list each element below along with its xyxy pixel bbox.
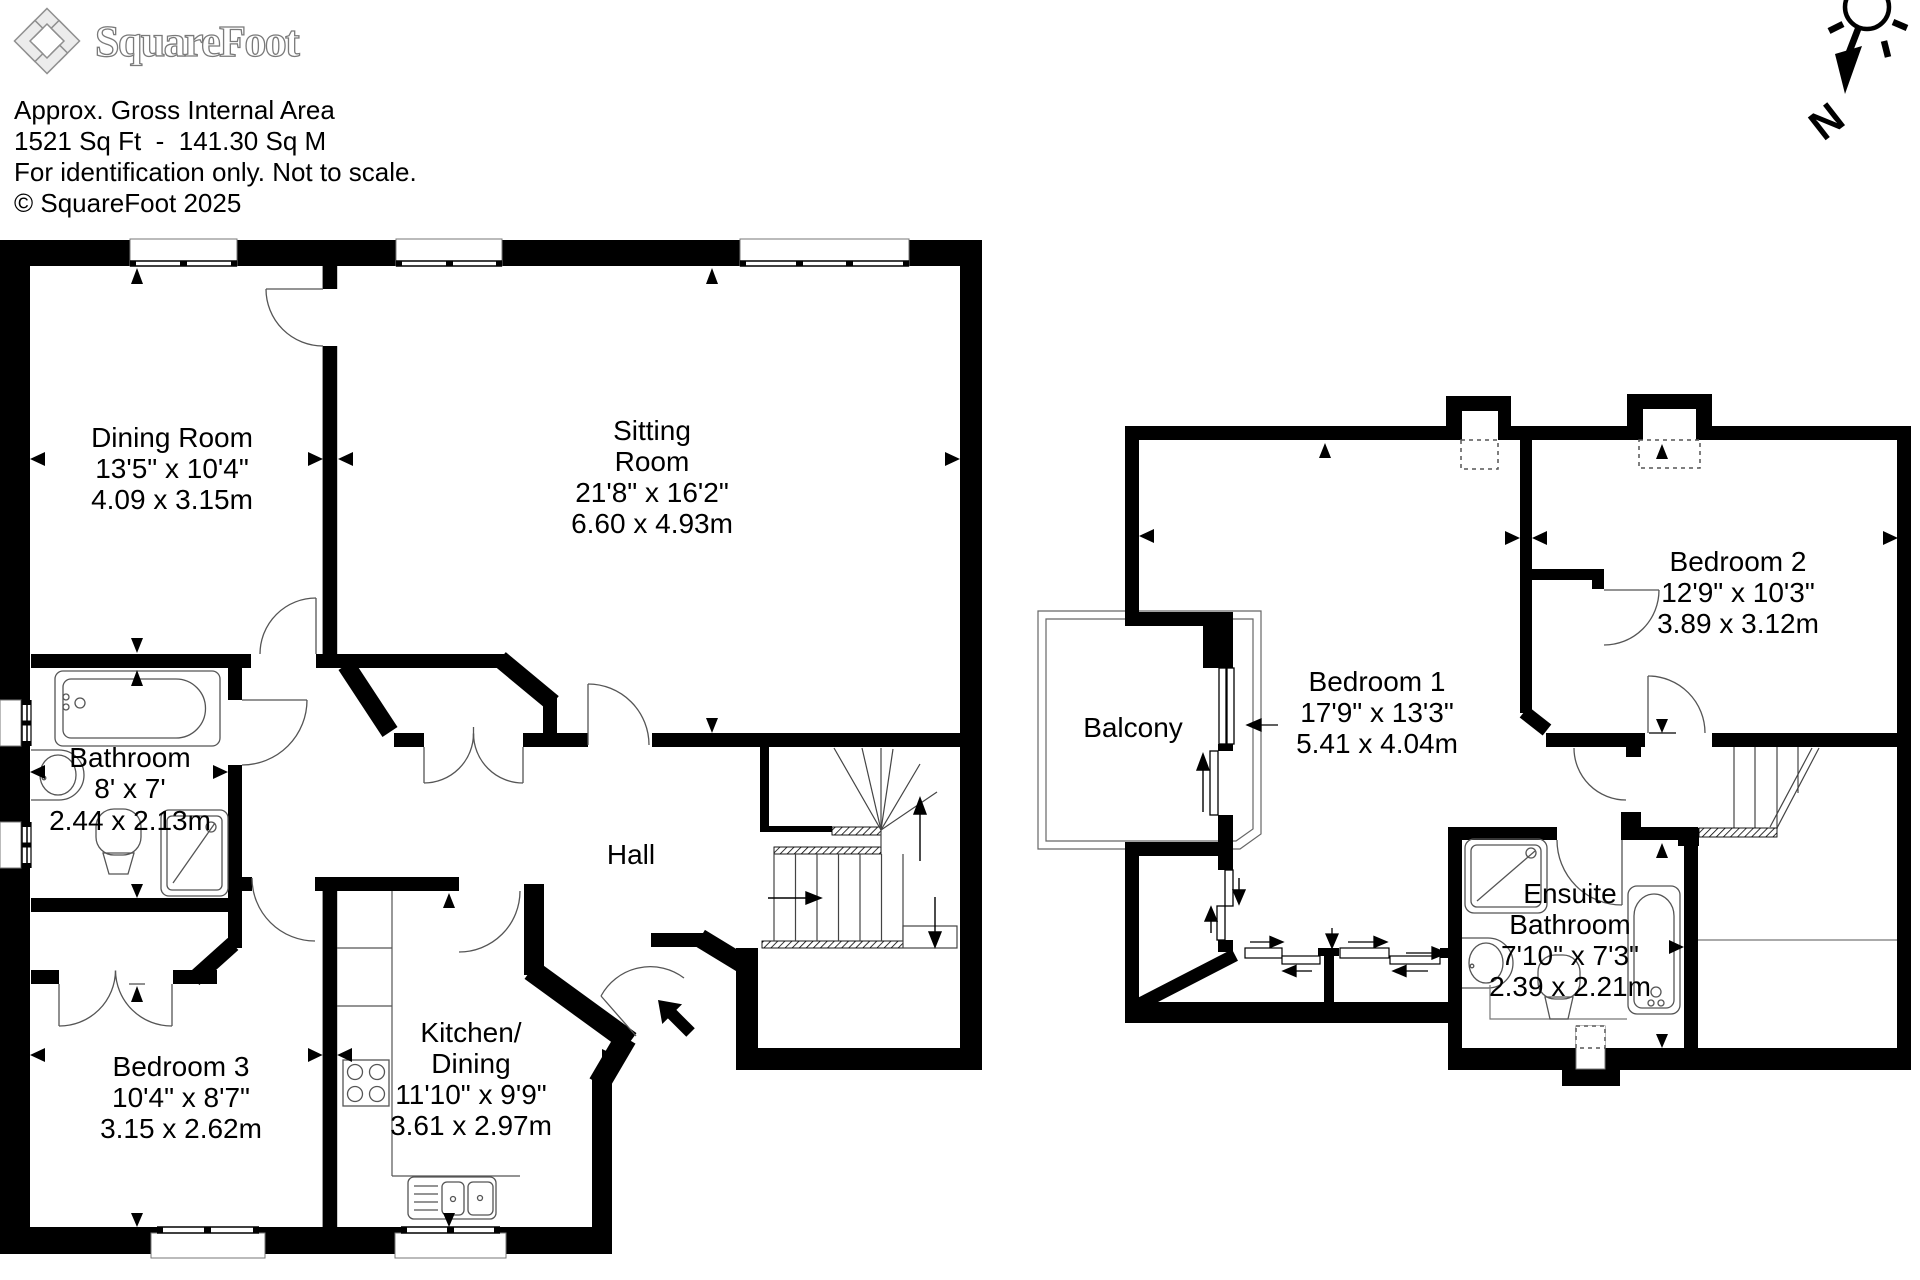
svg-text:10'4" x 8'7": 10'4" x 8'7" (112, 1082, 250, 1113)
svg-text:7'10" x 7'3": 7'10" x 7'3" (1501, 940, 1639, 971)
svg-text:SquareFoot: SquareFoot (95, 17, 300, 66)
svg-text:3.61 x 2.97m: 3.61 x 2.97m (390, 1110, 552, 1141)
svg-text:Bedroom 1: Bedroom 1 (1309, 666, 1446, 697)
svg-text:5.41 x 4.04m: 5.41 x 4.04m (1296, 728, 1458, 759)
svg-text:13'5" x 10'4": 13'5" x 10'4" (95, 453, 249, 484)
svg-text:6.60 x 4.93m: 6.60 x 4.93m (571, 508, 733, 539)
svg-text:Bathroom: Bathroom (69, 742, 190, 773)
svg-text:3.15 x 2.62m: 3.15 x 2.62m (100, 1113, 262, 1144)
svg-text:Dining Room: Dining Room (91, 422, 253, 453)
svg-text:For identification only. Not t: For identification only. Not to scale. (14, 157, 417, 187)
svg-text:Room: Room (615, 446, 690, 477)
svg-text:12'9" x 10'3": 12'9" x 10'3" (1661, 577, 1815, 608)
svg-text:Bedroom 3: Bedroom 3 (113, 1051, 250, 1082)
svg-text:1521 Sq Ft - 141.30 Sq M: 1521 Sq Ft - 141.30 Sq M (14, 126, 326, 156)
svg-text:8' x 7': 8' x 7' (94, 773, 165, 804)
svg-text:Sitting: Sitting (613, 415, 691, 446)
svg-text:Bedroom 2: Bedroom 2 (1670, 546, 1807, 577)
svg-text:Bathroom: Bathroom (1509, 909, 1630, 940)
svg-text:21'8" x 16'2": 21'8" x 16'2" (575, 477, 729, 508)
svg-text:2.44 x 2.13m: 2.44 x 2.13m (49, 805, 211, 836)
svg-text:Ensuite: Ensuite (1523, 878, 1616, 909)
svg-text:Dining: Dining (431, 1048, 510, 1079)
svg-text:Kitchen/: Kitchen/ (420, 1017, 521, 1048)
svg-text:Hall: Hall (607, 839, 655, 870)
svg-text:17'9" x 13'3": 17'9" x 13'3" (1300, 697, 1454, 728)
svg-text:© SquareFoot 2025: © SquareFoot 2025 (14, 188, 241, 218)
svg-text:4.09 x 3.15m: 4.09 x 3.15m (91, 484, 253, 515)
svg-text:3.89 x 3.12m: 3.89 x 3.12m (1657, 608, 1819, 639)
svg-text:2.39 x 2.21m: 2.39 x 2.21m (1489, 971, 1651, 1002)
svg-text:11'10" x 9'9": 11'10" x 9'9" (395, 1079, 546, 1110)
svg-text:Balcony: Balcony (1083, 712, 1183, 743)
svg-text:Approx. Gross Internal Area: Approx. Gross Internal Area (14, 95, 335, 125)
